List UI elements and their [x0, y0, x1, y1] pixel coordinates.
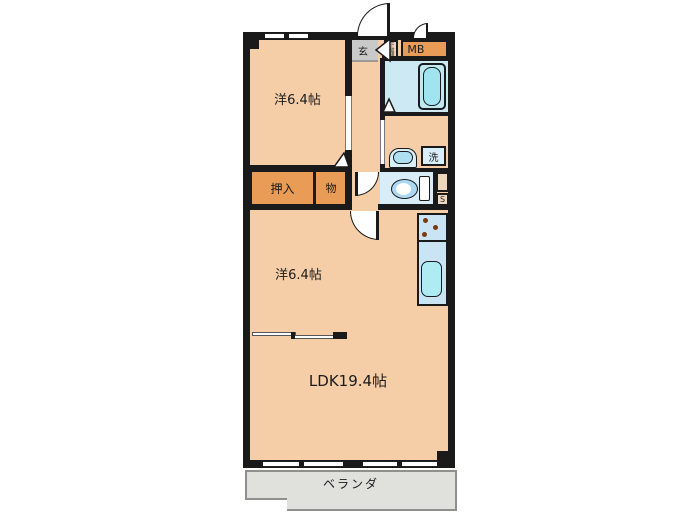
entrance-door-wedge: [376, 39, 390, 61]
ldk-label: LDK19.4帖: [278, 370, 418, 390]
bedroom1-door-wedge: [334, 153, 349, 167]
veranda-label: ベランダ: [245, 475, 457, 491]
bedroom-bottom-label: 洋6.4帖: [250, 263, 347, 283]
veranda: ベランダ: [245, 470, 457, 512]
bathroom-door-wedge: [383, 99, 395, 112]
floor-plan: 玄 下駄箱 MB 洗 S 押入 物: [0, 0, 700, 525]
bedroom-top-label: 洋6.4帖: [250, 88, 345, 108]
door-wedges: [0, 0, 700, 525]
